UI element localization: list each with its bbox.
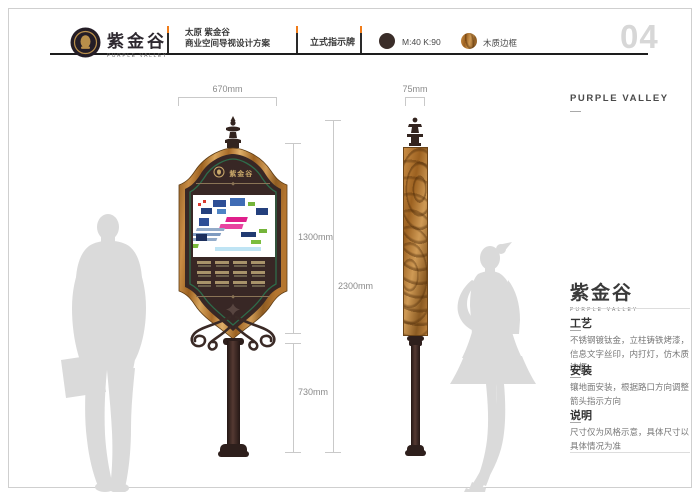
- directory-entry: [215, 271, 229, 277]
- woman-silhouette: [438, 242, 548, 497]
- sign-divider-top: ◆: [196, 183, 270, 184]
- directory-entry: [233, 271, 247, 277]
- brand-name-en: PURPLE VALLEY: [107, 53, 168, 59]
- directory-entry: [215, 261, 229, 267]
- header-divider: [360, 26, 362, 53]
- directory-entry: [197, 281, 211, 287]
- dim-75: 75mm: [395, 84, 435, 94]
- dim-670: 670mm: [178, 84, 277, 94]
- pole-baseplate-side: [405, 450, 426, 456]
- section-heading-craft: 工艺: [570, 315, 592, 331]
- directory-entry: [251, 271, 265, 277]
- dim-1300: 1300mm: [298, 232, 333, 242]
- directory-entry: [233, 281, 247, 287]
- sheet-title: 立式指示牌: [310, 35, 355, 48]
- brand-name-cn: 紫金谷: [107, 32, 167, 51]
- project-line2: 商业空间导视设计方案: [185, 38, 270, 49]
- sign-emblem-row: 紫金谷: [193, 163, 273, 181]
- sign-emblem-icon: [213, 166, 225, 178]
- section-body-install: 镶地面安装，根据路口方向调整箭头指示方向: [570, 381, 694, 408]
- sign-side-board: [403, 147, 428, 336]
- legend-label-wood: 木质边框: [483, 37, 517, 49]
- sign-map-panel: [193, 195, 275, 257]
- brand-emblem-icon: [70, 27, 101, 58]
- legend-label-color: M:40 K:90: [402, 37, 441, 47]
- page-number: 04: [620, 18, 659, 56]
- project-title: 太原 紫金谷 商业空间导视设计方案: [185, 27, 270, 49]
- directory-entry: [251, 261, 265, 267]
- section-body-notes: 尺寸仅为风格示意，具体尺寸以具体情况为准: [570, 426, 694, 453]
- directory-entry: [251, 281, 265, 287]
- side-panel-title: PURPLE VALLEY: [570, 93, 669, 104]
- side-panel-title-dash: [570, 111, 581, 112]
- legend-swatch-wood: [461, 33, 477, 49]
- section-heading-notes: 说明: [570, 407, 592, 423]
- man-silhouette: [45, 212, 165, 497]
- header-divider: [296, 26, 298, 53]
- pole-baseplate-front: [218, 451, 249, 457]
- project-line1: 太原 紫金谷: [185, 27, 270, 38]
- side-panel-brand-cn: 紫金谷: [570, 283, 633, 304]
- sign-emblem-text: 紫金谷: [229, 171, 253, 178]
- directory-entry: [215, 281, 229, 287]
- header-divider: [167, 26, 169, 53]
- directory-entry: [233, 261, 247, 267]
- dim-2300: 2300mm: [338, 281, 373, 291]
- brand-wordmark: 紫金谷 PURPLE VALLEY: [107, 27, 168, 59]
- design-sheet: { "header": { "brand": {"name_cn": "紫金谷"…: [0, 0, 700, 495]
- dim-730: 730mm: [298, 387, 328, 397]
- pole-front: [227, 341, 240, 448]
- finial-side: [405, 116, 425, 148]
- section-heading-install: 安装: [570, 362, 592, 378]
- sign-directory: [197, 261, 269, 291]
- directory-entry: [197, 261, 211, 267]
- directory-entry: [197, 271, 211, 277]
- finial-front: [221, 116, 245, 148]
- sign-divider-bottom: ◆: [196, 296, 270, 297]
- pole-side: [411, 345, 420, 448]
- legend-swatch-dark: [379, 33, 395, 49]
